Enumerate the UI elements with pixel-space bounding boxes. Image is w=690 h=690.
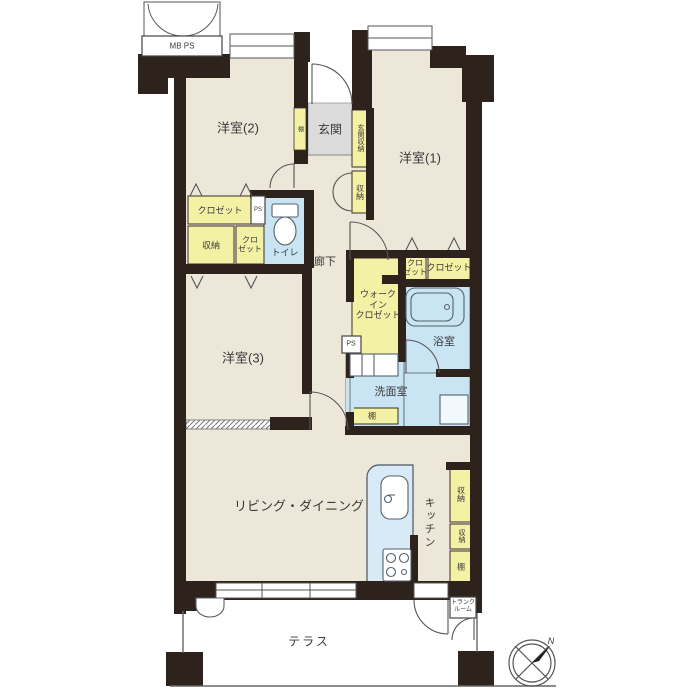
- label-genkan: 玄関: [318, 121, 342, 138]
- label-living-dining: リビング・ダイニング: [234, 496, 364, 515]
- label-washroom-shelf: 棚: [368, 411, 376, 422]
- label-entry-storage: 収納: [355, 184, 366, 200]
- label-room2: 洋室(2): [217, 118, 259, 137]
- label-wic: ウォーク イン クロゼット: [355, 289, 400, 321]
- label-toilet: トイレ: [271, 246, 298, 259]
- label-storage-w: 収納: [202, 239, 220, 252]
- sliding-partition: [186, 420, 272, 429]
- floorplan-drawing: [0, 0, 690, 690]
- label-genkan-shuno: 玄関収納: [355, 124, 365, 152]
- label-closet-nw: クロゼット: [197, 204, 242, 217]
- label-closet-w-small: クロ ゼット: [238, 236, 262, 255]
- label-closet-e-small: クロ ゼット: [403, 259, 427, 278]
- label-corridor: 廊下: [314, 253, 336, 269]
- label-washroom: 洗面室: [375, 383, 408, 399]
- terrace-structure: [166, 611, 556, 686]
- trunk-door: [452, 618, 474, 640]
- label-compass-north: N: [548, 636, 555, 646]
- terrace-post-right: [458, 651, 494, 686]
- floorplan: MB PS 洋室(2) 玄関 棚 玄関収納 収納 洋室(1) クロゼット PS …: [0, 0, 690, 690]
- label-ps-1: PS: [254, 207, 262, 213]
- terrace-step: [196, 598, 224, 617]
- toilet-fixture: [272, 204, 298, 245]
- kitchen-terrace-door: [414, 600, 448, 634]
- label-kitchen-storage-2: 収納: [456, 529, 466, 543]
- label-entry-shelf: 棚: [296, 126, 305, 132]
- kitchen-sink: [381, 476, 408, 519]
- terrace-post-left: [166, 652, 203, 686]
- label-room3: 洋室(3): [222, 348, 264, 367]
- label-bath: 浴室: [433, 333, 455, 349]
- washing-machine: [440, 395, 468, 424]
- label-ps-2: PS: [346, 341, 355, 348]
- label-kitchen: キッチン: [421, 497, 437, 549]
- door-kitchen-terrace: [414, 583, 448, 598]
- label-kitchen-shelf: 棚: [457, 562, 465, 573]
- vanity: [350, 354, 398, 376]
- label-terrace: テラス: [288, 633, 330, 650]
- compass-icon: [509, 640, 555, 686]
- label-trunk-room: トランク ルーム: [451, 600, 475, 614]
- label-room1: 洋室(1): [399, 148, 441, 167]
- label-kitchen-storage-1: 収納: [456, 486, 467, 502]
- label-closet-e: クロゼット: [426, 261, 471, 274]
- stove: [383, 549, 411, 581]
- label-mb-ps: MB PS: [170, 42, 195, 51]
- washroom-door: [346, 378, 354, 412]
